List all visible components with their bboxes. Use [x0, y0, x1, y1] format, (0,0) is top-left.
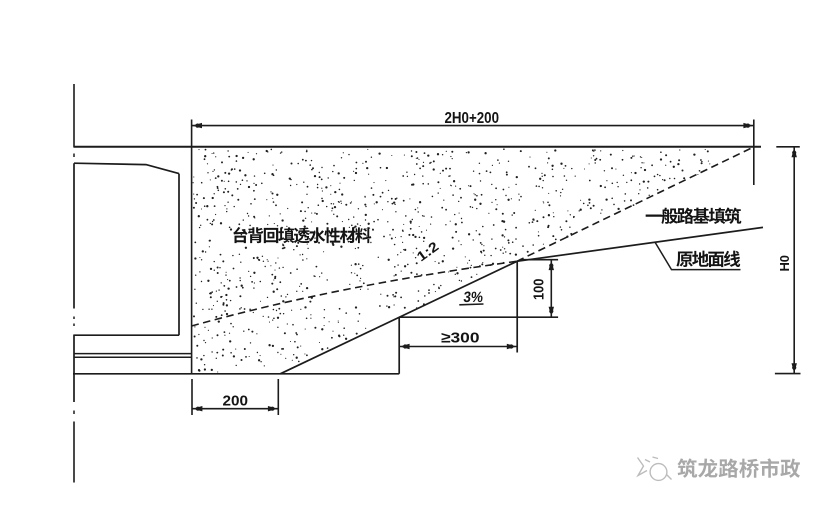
- svg-text:2H0+200: 2H0+200: [445, 110, 500, 127]
- svg-text:≥300: ≥300: [441, 330, 480, 347]
- svg-text:100: 100: [531, 279, 548, 301]
- svg-text:200: 200: [223, 393, 249, 410]
- svg-text:1:2: 1:2: [414, 239, 441, 265]
- svg-text:H0: H0: [778, 255, 792, 272]
- svg-text:3%: 3%: [463, 289, 484, 306]
